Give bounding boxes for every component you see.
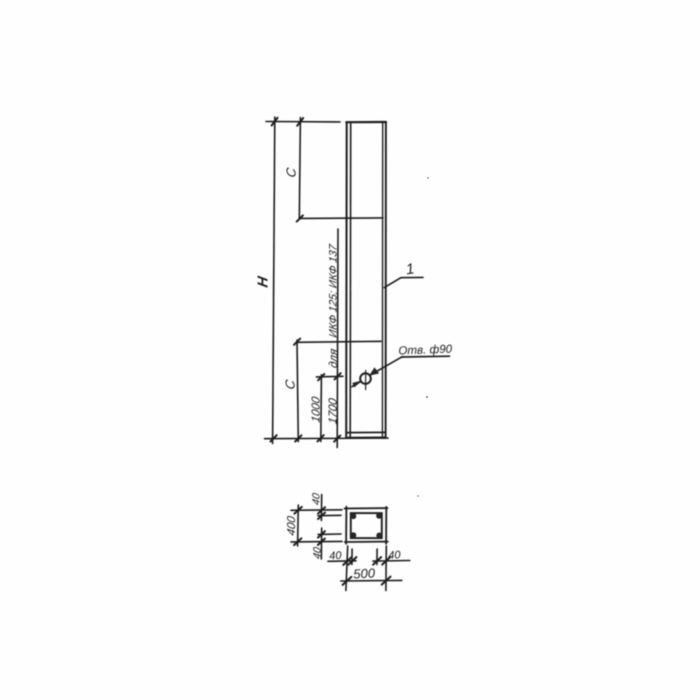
svg-text:40: 40 xyxy=(388,549,402,562)
svg-text:40: 40 xyxy=(329,550,343,563)
svg-text:400: 400 xyxy=(286,515,298,537)
svg-text:40: 40 xyxy=(311,492,323,506)
svg-text:1000: 1000 xyxy=(311,395,323,423)
svg-text:C: C xyxy=(283,378,298,391)
svg-text:C: C xyxy=(284,166,299,179)
svg-text:ИКФ 125; ИКФ 137: ИКФ 125; ИКФ 137 xyxy=(328,243,340,339)
svg-text:1700: 1700 xyxy=(328,397,340,425)
svg-text:500: 500 xyxy=(353,565,376,581)
svg-text:H: H xyxy=(256,275,272,289)
svg-text:для: для xyxy=(328,348,340,369)
svg-text:40: 40 xyxy=(312,546,324,560)
svg-text:Отв. ф90: Отв. ф90 xyxy=(398,343,453,358)
svg-text:1: 1 xyxy=(405,260,416,278)
